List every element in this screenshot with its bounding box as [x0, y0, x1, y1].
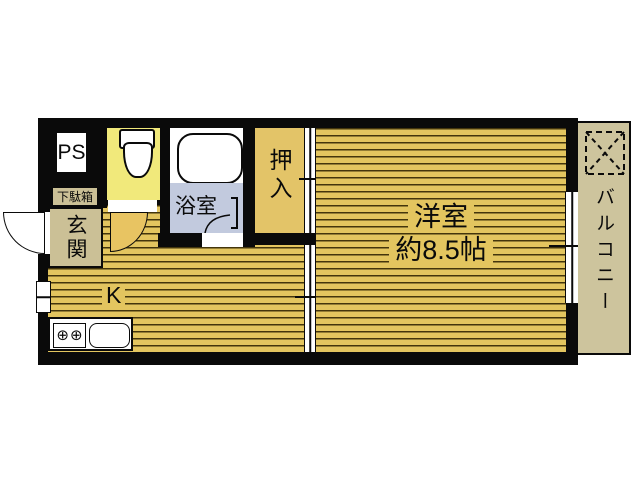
western-room-label-block: 洋室 約8.5帖 — [316, 203, 566, 273]
pipe-space-label: PS — [57, 142, 85, 163]
stove-burner-icon: ⊕ — [70, 328, 83, 343]
pipe-space: PS — [55, 131, 88, 174]
stove-icon: ⊕⊕ — [53, 323, 86, 348]
sink-icon — [89, 323, 130, 348]
western-room-size: 約8.5帖 — [389, 236, 493, 265]
stove-burner-icon: ⊕ — [56, 328, 69, 343]
shoe-cabinet-label: 下駄箱 — [57, 191, 93, 203]
balcony-label: バルコニー — [594, 187, 613, 317]
front-door-swing-icon — [3, 212, 45, 254]
wall-toilet-bath — [160, 128, 170, 247]
balcony-window-icon — [565, 192, 579, 303]
bathtub-icon — [177, 133, 243, 184]
bathroom-doorway — [202, 233, 243, 247]
wall-bath-closet — [243, 128, 255, 247]
closet-label: 押入 — [267, 148, 290, 204]
kitchen-window-icon — [36, 281, 51, 313]
wall-below-closet — [255, 233, 316, 245]
toilet-doorway — [108, 200, 157, 212]
washer-pan-icon — [585, 131, 625, 175]
shoe-cabinet: 下駄箱 — [51, 186, 99, 207]
western-room-name: 洋室 — [408, 203, 474, 232]
balcony: バルコニー — [578, 121, 631, 355]
kitchen-sliding-door-icon — [304, 245, 316, 352]
entrance: 玄関 — [48, 207, 103, 268]
kitchen-label: K — [102, 284, 125, 307]
entrance-label: 玄関 — [65, 214, 86, 262]
floor-plan: 浴室 押入 洋室 約8.5帖 PS 下駄箱 玄関 ⊕⊕ K — [0, 0, 640, 480]
closet-sliding-door-icon — [304, 128, 316, 233]
